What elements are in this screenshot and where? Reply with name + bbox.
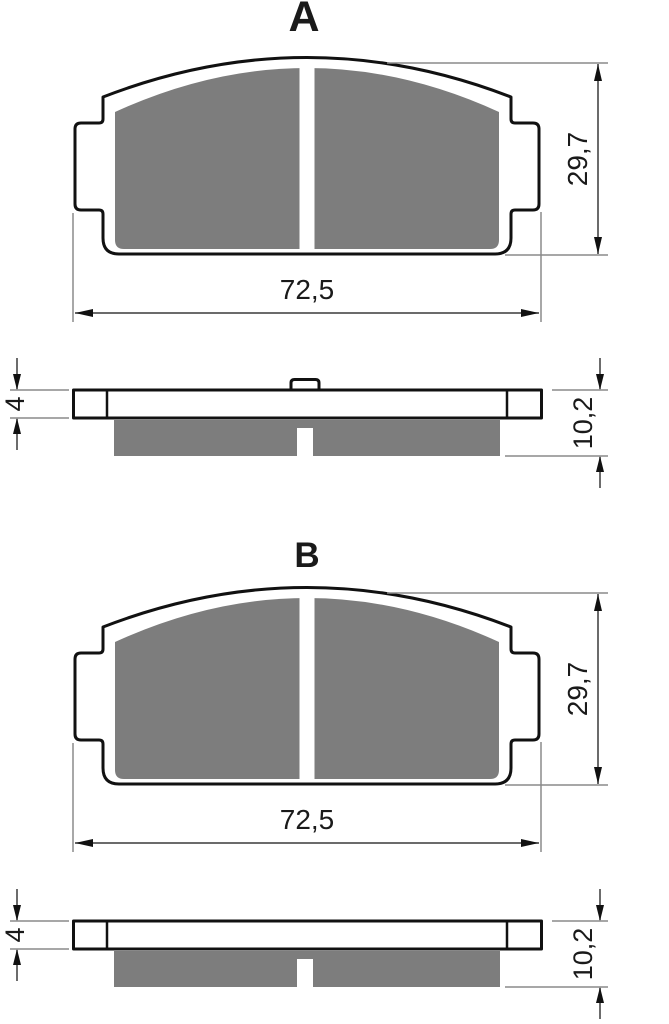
pad-a-backplate-tab [291, 380, 319, 390]
height-dimension-text: 29,7 [562, 662, 593, 717]
arrow-up-icon [594, 594, 602, 611]
pad-a-backplate-thickness-dimension: 4 [0, 358, 69, 450]
pad-b-side-groove [297, 959, 313, 988]
arrow-up-icon [13, 949, 21, 965]
pad-a-side-view: 4 10,2 [0, 350, 669, 500]
technical-drawing-page: A 29,7 72,5 [0, 0, 669, 1024]
height-dimension-text: 29,7 [562, 132, 593, 187]
pad-a-side-groove [297, 428, 313, 457]
total-thickness-text: 10,2 [568, 397, 598, 450]
pad-a-front-view: 29,7 72,5 [0, 0, 669, 335]
width-dimension-text: 72,5 [280, 804, 335, 835]
pad-b-backplate [74, 921, 542, 949]
arrow-up-icon [596, 456, 604, 472]
arrow-down-icon [594, 767, 602, 784]
pad-a-total-thickness-dimension: 10,2 [505, 358, 608, 488]
arrow-up-icon [596, 987, 604, 1003]
pad-b-side-view: 4 10,2 [0, 881, 669, 1024]
arrow-down-icon [596, 905, 604, 921]
pad-b-backplate-thickness-dimension: 4 [0, 889, 69, 981]
arrow-left-icon [75, 839, 93, 847]
arrow-right-icon [521, 309, 539, 317]
pad-b-total-thickness-dimension: 10,2 [505, 889, 608, 1019]
backplate-thickness-text: 4 [0, 396, 30, 411]
arrow-down-icon [13, 905, 21, 921]
total-thickness-text: 10,2 [568, 928, 598, 981]
arrow-down-icon [594, 237, 602, 254]
pad-a-backplate [74, 390, 542, 418]
pad-a-center-groove [300, 62, 315, 250]
arrow-left-icon [75, 309, 93, 317]
pad-b-front-view: 29,7 72,5 [0, 530, 669, 865]
arrow-down-icon [13, 374, 21, 390]
arrow-down-icon [596, 374, 604, 390]
arrow-up-icon [13, 418, 21, 434]
width-dimension-text: 72,5 [280, 274, 335, 305]
arrow-up-icon [594, 64, 602, 81]
arrow-right-icon [521, 839, 539, 847]
pad-b-center-groove [300, 592, 315, 780]
backplate-thickness-text: 4 [0, 927, 30, 942]
